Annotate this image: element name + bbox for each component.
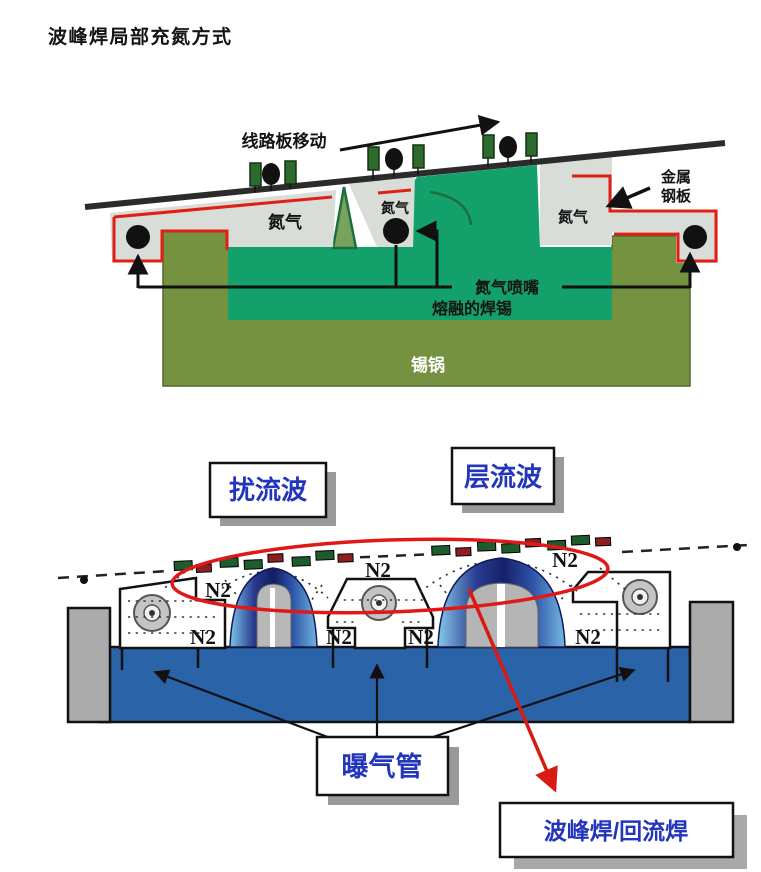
n2-label-5: N2	[326, 625, 352, 649]
top-diagram: 线路板移动 氮气 氮气 氮气 金属 钢板 氮气喷嘴 熔融的焊锡 锡锅	[85, 122, 725, 386]
metal-plate-label-1: 金属	[660, 168, 691, 186]
label-box-turbulent: 扰流波	[210, 463, 336, 526]
turbulent-wave-label: 扰流波	[229, 475, 308, 505]
n2-label-2: N2	[365, 558, 391, 582]
laminar-wave-label: 层流波	[464, 462, 543, 492]
n2-label-3: N2	[552, 548, 578, 572]
board-move-label: 线路板移动	[242, 131, 327, 151]
solder-wave-mass	[413, 165, 540, 248]
label-box-aeration: 曝气管	[317, 737, 459, 805]
diagram-canvas: 线路板移动 氮气 氮气 氮气 金属 钢板 氮气喷嘴 熔融的焊锡 锡锅	[0, 0, 761, 872]
conveyor-dot-left	[80, 576, 88, 584]
label-box-laminar: 层流波	[452, 448, 564, 513]
machine-block-right	[690, 602, 733, 722]
screenshot-root: 波峰焊局部充氮方式	[0, 0, 761, 872]
nozzle-label: 氮气喷嘴	[475, 278, 539, 297]
n2-label-7: N2	[575, 625, 601, 649]
solder-wave-peak	[333, 187, 356, 248]
machine-block-left	[68, 608, 110, 722]
nitrogen-label-left: 氮气	[268, 212, 302, 232]
bottom-diagram: N2 N2 N2 N2 N2 N2 N2 扰流波 层流波	[58, 448, 748, 869]
conveyor-dot-right	[733, 543, 741, 551]
nitrogen-label-center: 氮气	[380, 200, 409, 216]
metal-plate-label-2: 钢板	[661, 187, 692, 205]
metal-plate-arrow	[608, 188, 650, 206]
n2-label-6: N2	[408, 625, 434, 649]
roller-middle	[362, 586, 396, 620]
nitrogen-label-right: 氮气	[558, 208, 588, 226]
nozzle-center	[383, 218, 409, 244]
nozzle-left	[126, 225, 150, 249]
roller-right	[623, 580, 657, 614]
molten-solder-label: 熔融的焊锡	[432, 299, 512, 318]
nozzle-right	[683, 225, 707, 249]
n2-label-1: N2	[205, 578, 231, 602]
tin-pot-label: 锡锅	[411, 355, 445, 375]
wave-reflow-label: 波峰焊/回流焊	[544, 818, 688, 844]
aeration-pipe-label: 曝气管	[342, 752, 423, 782]
molten-solder	[228, 247, 612, 320]
n2-label-4: N2	[190, 625, 216, 649]
label-box-combo: 波峰焊/回流焊	[500, 803, 747, 869]
